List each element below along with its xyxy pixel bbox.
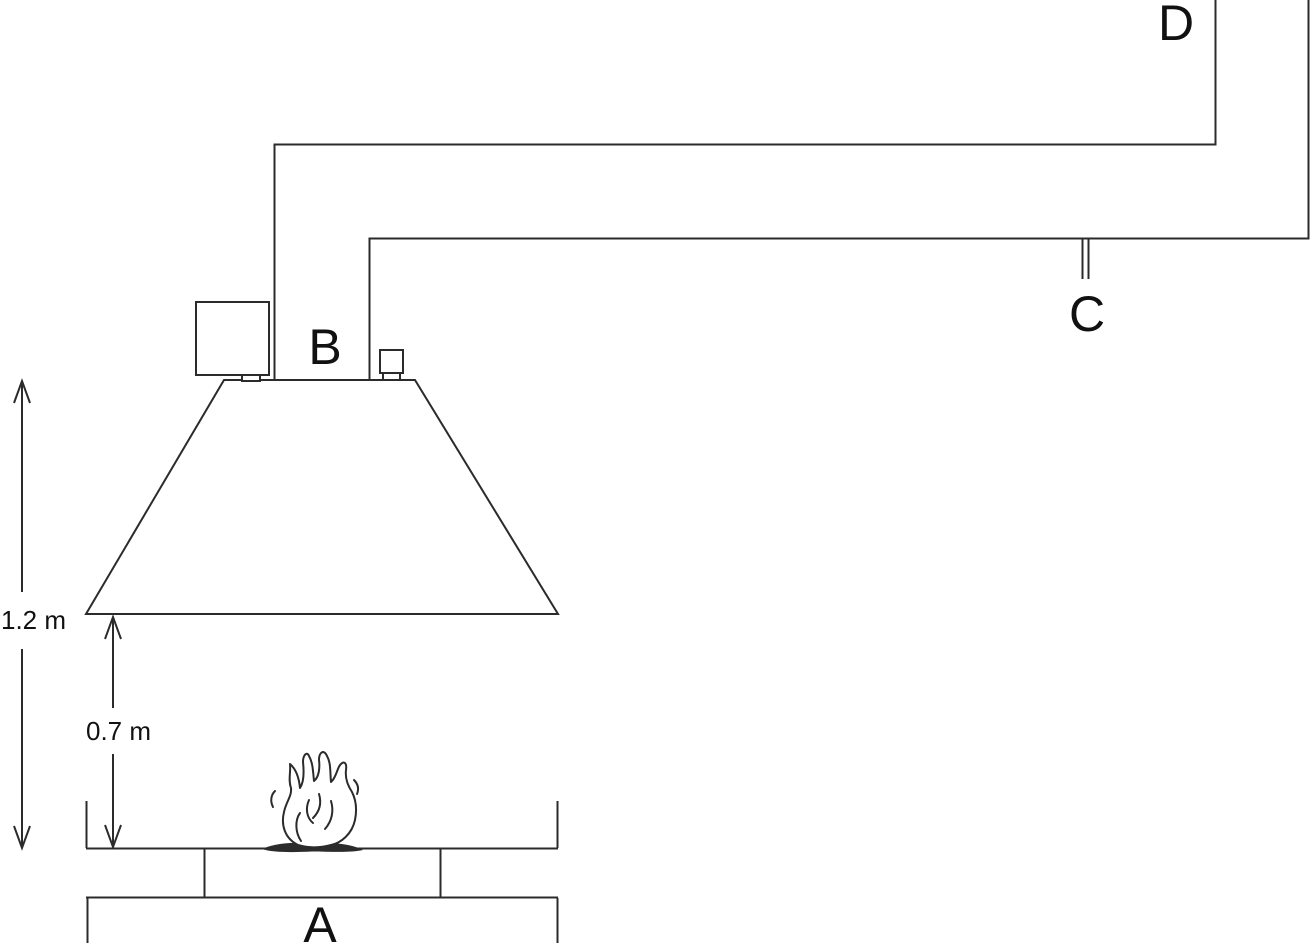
instrument-box-large <box>196 302 269 381</box>
flame-spark-right <box>354 780 358 794</box>
duct-lower-line <box>370 0 1309 380</box>
instrument-box-small <box>380 350 403 380</box>
instrument-box-large-foot <box>242 375 260 381</box>
dimension-1-2-m: 1.2 m <box>1 381 66 848</box>
instrument-box-small-body <box>380 350 403 373</box>
instrument-box-large-body <box>196 302 269 375</box>
hood-outline <box>86 380 558 614</box>
fume-hood-schematic: 1.2 m 0.7 m A B C D <box>0 0 1315 952</box>
label-a: A <box>303 897 337 952</box>
dimension-0-7-m: 0.7 m <box>86 617 151 847</box>
label-d: D <box>1158 0 1194 51</box>
dim-0-7-label: 0.7 m <box>86 716 151 746</box>
exhaust-duct-lower <box>370 0 1309 380</box>
diagram-canvas: 1.2 m 0.7 m A B C D <box>0 0 1315 952</box>
label-c: C <box>1069 286 1105 342</box>
instrument-box-small-foot <box>383 373 400 380</box>
dim-1-2-label: 1.2 m <box>1 605 66 635</box>
label-b: B <box>308 319 341 375</box>
flame-icon <box>262 752 363 852</box>
sampling-tap <box>1083 239 1089 279</box>
flame-spark-left <box>271 791 275 807</box>
fume-hood <box>86 380 558 614</box>
